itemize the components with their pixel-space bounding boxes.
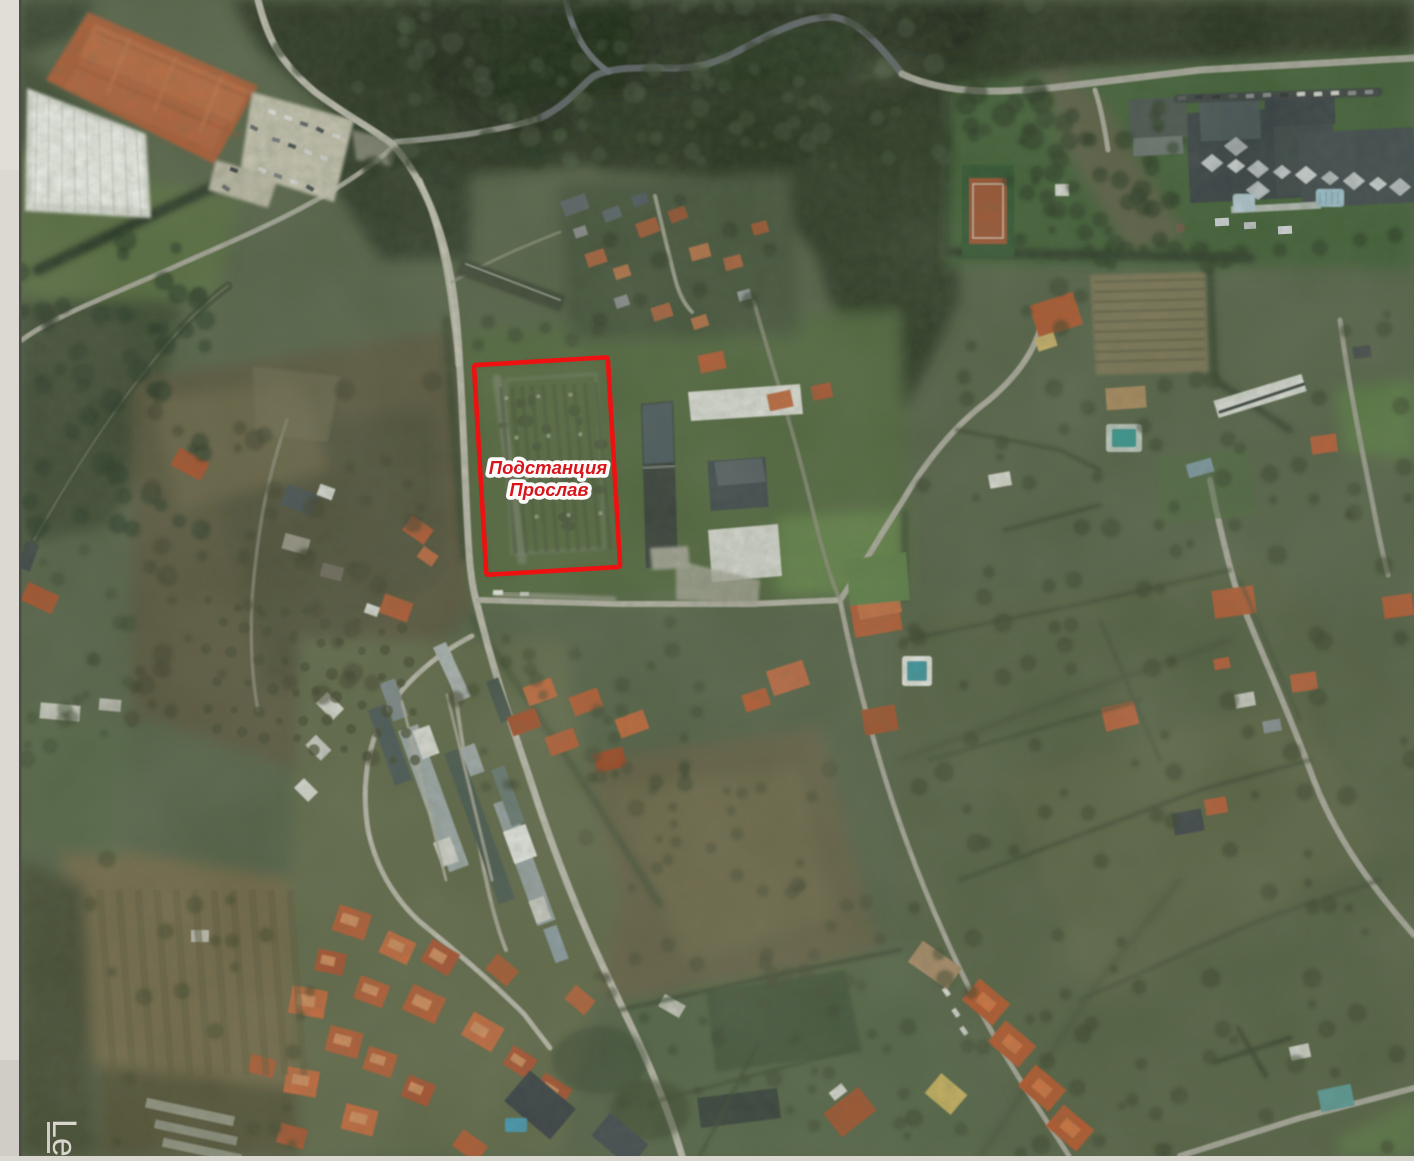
svg-text:Подстанция: Подстанция: [489, 457, 607, 478]
svg-text:Le: Le: [45, 1119, 83, 1156]
svg-text:Прослав: Прослав: [509, 479, 588, 500]
